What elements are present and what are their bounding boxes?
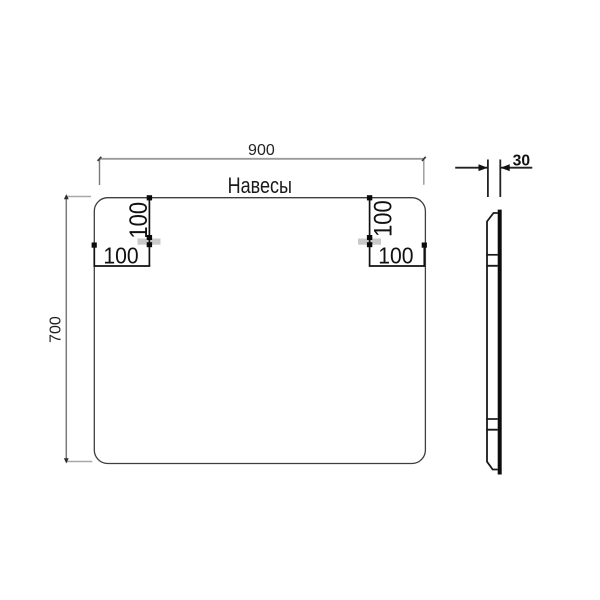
svg-text:900: 900 [248, 142, 275, 159]
svg-text:Навесы: Навесы [228, 174, 292, 198]
svg-text:100: 100 [125, 202, 153, 239]
svg-text:100: 100 [378, 243, 413, 269]
svg-text:700: 700 [48, 316, 65, 343]
svg-text:100: 100 [369, 200, 397, 237]
svg-text:30: 30 [513, 153, 531, 170]
svg-text:100: 100 [103, 243, 138, 269]
